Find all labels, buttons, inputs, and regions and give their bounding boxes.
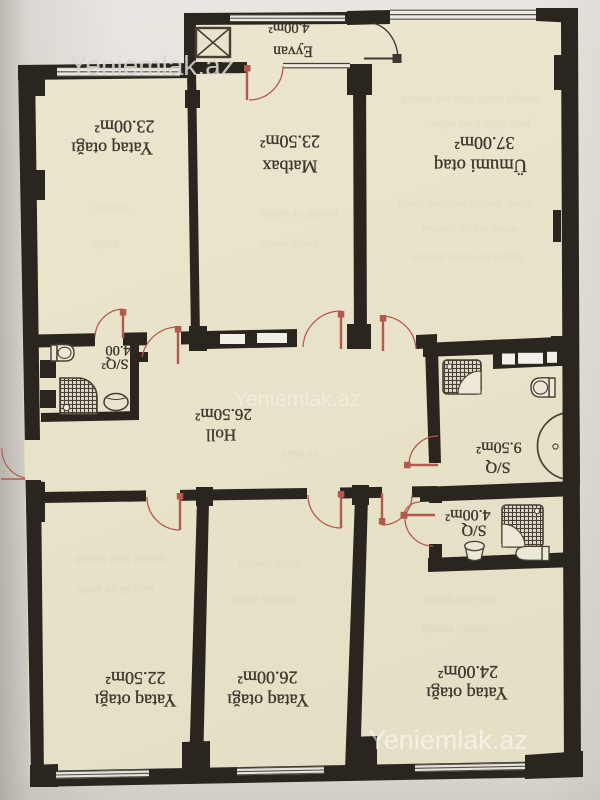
svg-text:temirli ev satilir: temirli ev satilir (262, 208, 339, 222)
svg-text:otaqli menzil metroya yaxin: otaqli menzil metroya yaxin (398, 198, 533, 212)
svg-text:ev elani: ev elani (281, 448, 319, 462)
svg-text:23.00m²: 23.00m² (95, 117, 155, 137)
svg-text:kupcali ev satilir: kupcali ev satilir (75, 583, 155, 597)
svg-text:ipoteka sened: ipoteka sened (232, 593, 298, 607)
svg-text:S/Q: S/Q (461, 521, 486, 538)
svg-text:Yeniemlak.az: Yeniemlak.az (368, 725, 528, 755)
svg-text:S/Q: S/Q (485, 458, 510, 475)
svg-text:satilir: satilir (91, 238, 118, 252)
svg-text:yeni tikili Baki seher: yeni tikili Baki seher (430, 118, 530, 132)
svg-text:9.50m²: 9.50m² (476, 438, 521, 455)
svg-text:Yeniemlak.az: Yeniemlak.az (69, 50, 235, 81)
svg-text:37.00m²: 37.00m² (455, 133, 515, 153)
svg-text:menzil yeni temirli: menzil yeni temirli (74, 553, 166, 567)
svg-text:4.00m²: 4.00m² (445, 506, 490, 523)
svg-text:Yataq otağı: Yataq otağı (95, 691, 177, 711)
svg-text:Yeniemlak.az: Yeniemlak.az (233, 387, 360, 411)
svg-text:24.00m²: 24.00m² (438, 662, 498, 682)
svg-text:bina evi: bina evi (90, 203, 129, 217)
svg-text:Matbax: Matbax (263, 157, 318, 177)
svg-text:Holl: Holl (206, 426, 237, 445)
svg-text:sened kupca ipoteka: sened kupca ipoteka (421, 223, 519, 237)
svg-text:S/Q²: S/Q² (101, 355, 129, 371)
svg-text:22.50m²: 22.50m² (106, 668, 166, 688)
svg-text:Eyvan: Eyvan (273, 43, 313, 60)
svg-text:menzil satilir bina evi temirl: menzil satilir bina evi temirli (400, 93, 540, 107)
svg-text:otaqli menzil: otaqli menzil (238, 558, 302, 572)
svg-text:Yataq otağı: Yataq otağı (71, 139, 153, 159)
svg-text:Ümumi otaq: Ümumi otaq (434, 155, 527, 176)
svg-text:yaxin metro: yaxin metro (261, 238, 319, 252)
svg-text:26.00m²: 26.00m² (238, 668, 298, 688)
svg-text:kombi ile temin olunub: kombi ile temin olunub (412, 251, 524, 265)
svg-text:Yataq otağı: Yataq otağı (227, 691, 309, 711)
svg-text:Yataq otağı: Yataq otağı (426, 684, 508, 704)
svg-text:23.50m²: 23.50m² (260, 132, 320, 152)
svg-text:temirli menzil: temirli menzil (421, 623, 489, 637)
svg-text:bina evi metro: bina evi metro (425, 593, 494, 607)
svg-text:4.00m²: 4.00m² (268, 19, 310, 35)
